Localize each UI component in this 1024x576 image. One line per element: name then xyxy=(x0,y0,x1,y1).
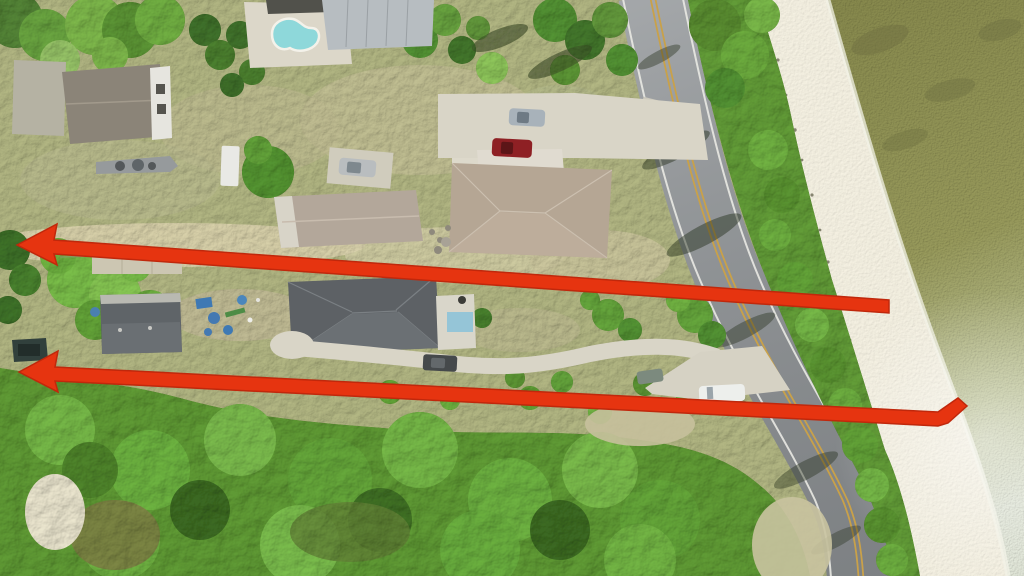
tree-canopy xyxy=(855,468,889,502)
round-tree xyxy=(244,136,272,164)
forest-sand-clearing xyxy=(25,474,85,550)
dark-car-roof xyxy=(431,358,446,369)
utility-trailer xyxy=(220,146,239,187)
tree-canopy xyxy=(864,507,900,543)
palm-tree xyxy=(592,2,628,38)
barn-tower-window xyxy=(156,84,165,94)
tree-canopy xyxy=(795,308,829,342)
tree-canopy xyxy=(606,44,638,76)
tree-shadow-pocket xyxy=(530,500,590,560)
yard-item xyxy=(248,318,253,323)
barn-concrete-pad xyxy=(12,60,66,136)
dry-grass-patch xyxy=(20,140,220,220)
roof-vent xyxy=(118,328,122,332)
aerial-photo-stage xyxy=(0,0,1024,576)
boat-gear xyxy=(132,159,144,171)
tree-canopy xyxy=(204,404,276,476)
light-blue-tarp xyxy=(447,312,473,332)
blue-tarp-items xyxy=(223,325,233,335)
blue-tarp-items xyxy=(208,312,220,324)
boat-gear xyxy=(148,162,156,170)
west-house-south-face xyxy=(102,322,182,354)
tree-canopy xyxy=(759,219,791,251)
hedge xyxy=(9,264,41,296)
tree-canopy xyxy=(810,347,846,383)
barn-tower xyxy=(150,66,172,140)
backyard-grill xyxy=(458,296,466,304)
pool-house-roof xyxy=(322,0,434,50)
aerial-photo xyxy=(0,0,1024,576)
blue-tarp-items xyxy=(237,295,247,305)
driveway-apron xyxy=(270,331,314,359)
red-car-glass xyxy=(501,142,514,155)
tree-canopy xyxy=(876,544,908,576)
boat-gear xyxy=(115,161,125,171)
white-suv-windshield xyxy=(707,387,714,399)
tree-canopy xyxy=(382,412,458,488)
blue-tarp-items xyxy=(90,307,100,317)
tree-canopy xyxy=(842,427,878,463)
conifer-tree xyxy=(220,73,244,97)
blue-tarp-items xyxy=(204,328,212,336)
pool-house-dark-roof xyxy=(266,0,332,14)
barn-tower-window xyxy=(157,104,166,114)
tree-canopy xyxy=(705,68,745,108)
parked-silver-car-glass xyxy=(347,161,362,173)
tree-shadow-pocket xyxy=(170,480,230,540)
silver-car-glass xyxy=(517,112,530,124)
tree-canopy xyxy=(764,177,800,213)
forest-brown-patch xyxy=(290,502,410,562)
tree-canopy xyxy=(448,36,476,64)
north-driveway xyxy=(438,93,708,160)
backyard-shed-roof xyxy=(18,344,40,356)
roof-vent xyxy=(148,326,152,330)
tree-canopy xyxy=(748,130,788,170)
palm-tree xyxy=(429,4,461,36)
yard-item xyxy=(256,298,260,302)
bush xyxy=(476,52,508,84)
bush xyxy=(551,371,573,393)
palm-tree xyxy=(618,318,642,342)
